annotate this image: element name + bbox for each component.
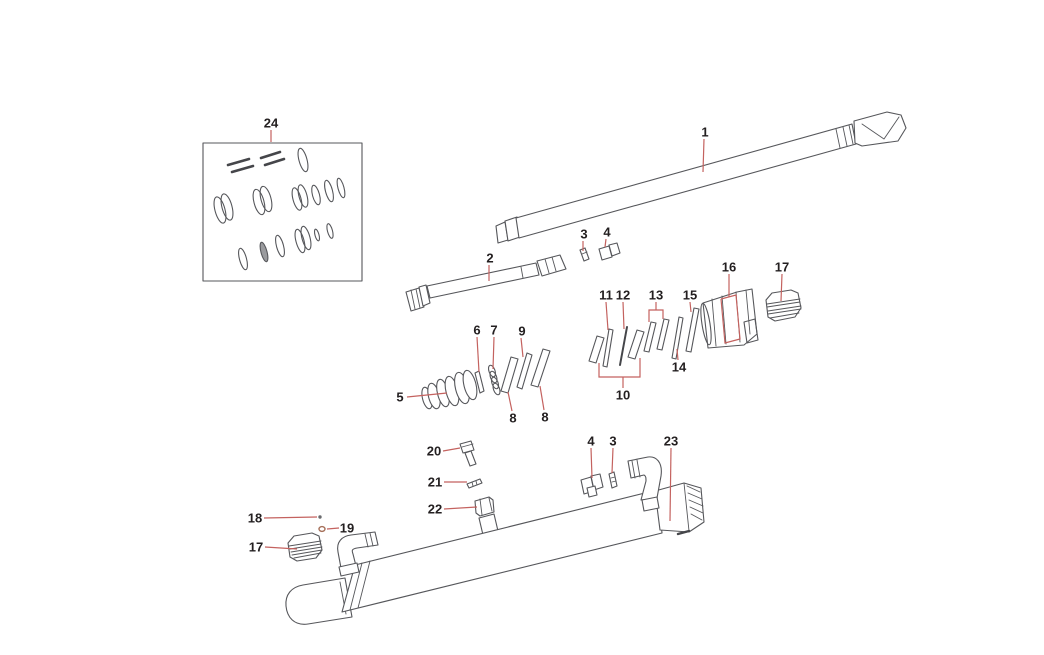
leader-line [540,386,544,410]
part-number-label: 20 [427,444,441,459]
leader-line [623,302,624,329]
part-number-label: 15 [683,288,697,303]
seal-kit-border [203,143,362,281]
part-number-label: 9 [518,324,525,339]
leader-line [444,507,477,509]
leader-line [264,517,317,518]
part-number-label: 18 [248,511,262,526]
leader-line [690,302,691,312]
strip-11 [603,329,613,367]
leader-line [605,239,606,247]
bolt [460,441,476,466]
leader-line [493,337,494,369]
callout-21: 21 [428,475,467,490]
end-cap [655,483,704,534]
strip-13a [644,322,656,352]
strip-15 [686,308,699,352]
callout-6: 6 [473,323,480,372]
leader-line [649,310,663,322]
part-number-label: 13 [649,288,663,303]
part-number-label: 6 [473,323,480,338]
callout-20: 20 [427,444,460,459]
leader-line [508,392,512,411]
part-number-label: 8 [509,411,516,426]
leader-line [521,338,523,357]
leader-line [606,302,608,330]
fitting-upper [599,243,620,260]
leader-line [591,448,592,478]
strip-10a [589,336,604,363]
callout-3: 3 [580,227,587,251]
strip-10b [628,330,644,359]
small-plug-19 [319,527,325,532]
port-stub [587,486,597,497]
part-number-label: 23 [664,434,678,449]
part-number-label: 17 [249,540,263,555]
pin-lower [609,472,617,488]
part-number-label: 3 [609,434,616,449]
seal-strip-9 [517,353,532,389]
part-number-label: 8 [541,410,548,425]
leader-line [327,528,339,529]
piston-seal-strips [589,308,699,367]
part-number-label: 5 [396,390,403,405]
rod-eye [286,578,352,624]
piston-nut-upper [766,290,801,321]
callout-13: 13 [649,288,663,322]
part-number-label: 10 [616,388,630,403]
cylinder-barrel [286,457,704,624]
callout-18: 18 [248,511,317,526]
callout-9: 9 [518,324,525,357]
callout-11: 11 [599,288,613,330]
callout-8: 8 [540,386,549,425]
seal-kit-box [203,143,362,281]
part-number-label: 17 [775,260,789,275]
part-number-label: 4 [587,434,595,449]
part-number-label: 22 [428,502,442,517]
piston-head [699,289,758,348]
piston-nut-lower [288,533,322,561]
leader-line [443,448,460,451]
part-number-label: 14 [672,360,687,375]
part-number-label: 19 [340,521,354,536]
leader-line [477,337,479,372]
seal-kit-contents [212,147,347,270]
callout-4: 4 [603,225,611,247]
part-number-label: 12 [616,288,630,303]
leader-line [612,448,613,473]
set-screw [467,479,482,488]
valve-fitting [475,497,498,535]
callout-4: 4 [587,434,595,478]
part-number-label: 21 [428,475,442,490]
part-number-label: 3 [580,227,587,242]
callout-22: 22 [428,502,477,517]
part-number-label: 11 [599,288,613,303]
diagram-canvas: 2412345679881112131514101617202122432318… [0,0,1044,655]
part-number-label: 2 [486,251,493,266]
part-number-label: 24 [264,116,279,131]
callout-3: 3 [609,434,616,473]
part-number-label: 7 [490,323,497,338]
exploded-parts-diagram: 2412345679881112131514101617202122432318… [0,0,1044,655]
part-number-label: 1 [701,125,708,140]
gland-assembly [420,369,479,410]
small-spring [487,364,501,395]
seal-strip-8a [501,357,518,393]
pin-upper [580,248,589,261]
callout-12: 12 [616,288,630,329]
callout-19: 19 [327,521,354,536]
callout-24: 24 [264,116,279,142]
seal-strip-8b [531,349,550,387]
callout-8: 8 [508,392,517,426]
strip-13b [657,319,669,350]
callout-7: 7 [490,323,497,369]
grease-ball-18 [318,515,321,518]
part-number-label: 4 [603,225,611,240]
rod-12 [620,327,627,365]
part-number-label: 16 [722,260,736,275]
